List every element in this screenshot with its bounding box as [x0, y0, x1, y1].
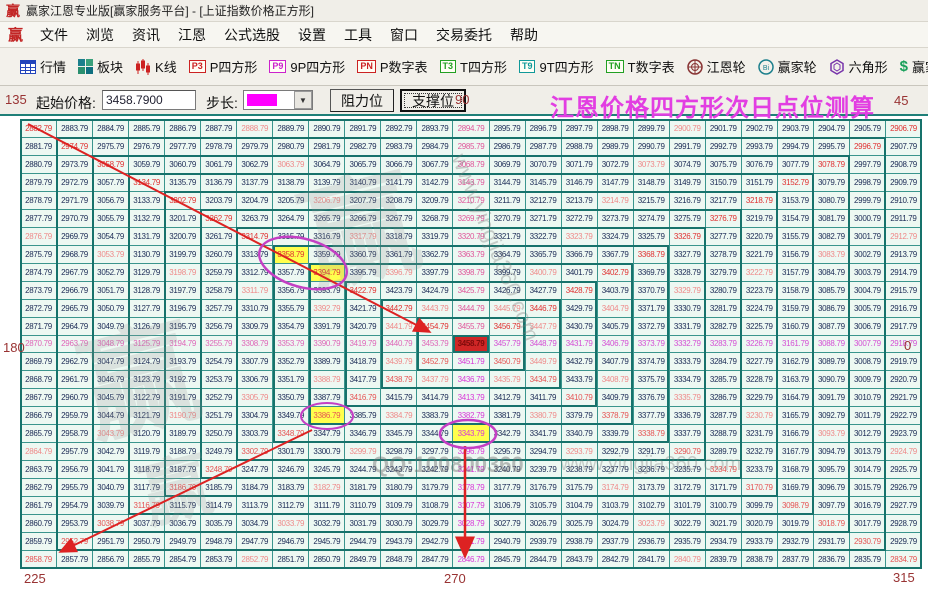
grid-cell: 2937.79	[598, 533, 634, 551]
grid-cell: 2879.79	[21, 174, 57, 192]
grid-cell: 3341.79	[526, 425, 562, 443]
grid-cell: 3067.79	[417, 156, 453, 174]
grid-cell: 2888.79	[237, 120, 273, 138]
grid-cell: 2940.79	[490, 533, 526, 551]
chip-p3-icon: P3	[189, 60, 206, 73]
toolbar-button-2[interactable]: 板块	[72, 54, 129, 79]
grid-cell: 3365.79	[526, 246, 562, 264]
toolbar-button-label: 赢家轮	[778, 57, 817, 76]
grid-cell: 3325.79	[634, 228, 670, 246]
grid-cell: 3340.79	[562, 425, 598, 443]
grid-cell: 3245.79	[309, 461, 345, 479]
grid-cell: 2993.79	[742, 138, 778, 156]
grid-cell: 3150.79	[706, 174, 742, 192]
grid-cell: 3048.79	[93, 336, 129, 354]
angle-label-90: 90	[455, 92, 469, 107]
grid-cell: 2977.79	[165, 138, 201, 156]
toolbar-button-8[interactable]: T99T四方形	[513, 54, 600, 79]
grid-cell: 3449.79	[526, 353, 562, 371]
grid-cell: 3143.79	[453, 174, 489, 192]
grid-cell: 2999.79	[850, 192, 886, 210]
grid-cell: 2975.79	[93, 138, 129, 156]
grid-cell: 3080.79	[814, 192, 850, 210]
grid-cell: 3301.79	[273, 443, 309, 461]
grid-cell: 3046.79	[93, 371, 129, 389]
grid-cell: 3326.79	[670, 228, 706, 246]
grid-cell: 3296.79	[453, 443, 489, 461]
menu-item-7[interactable]: 工具	[335, 23, 381, 47]
grid-cell: 2947.79	[237, 533, 273, 551]
grid-cell: 2852.79	[237, 551, 273, 569]
grid-cell: 3437.79	[417, 371, 453, 389]
grid-cell: 3357.79	[273, 264, 309, 282]
grid-cell: 2884.79	[93, 120, 129, 138]
grid-cell: 3324.79	[598, 228, 634, 246]
toolbar-button-label: 赢家服务	[912, 57, 928, 76]
grid-cell: 3010.79	[850, 389, 886, 407]
grid-cell: 3024.79	[598, 515, 634, 533]
grid-cell: 2873.79	[21, 282, 57, 300]
grid-cell: 3149.79	[670, 174, 706, 192]
grid-cell: 2857.79	[57, 551, 93, 569]
grid-cell: 3088.79	[814, 336, 850, 354]
grid-cell: 2843.79	[562, 551, 598, 569]
grid-cell: 2917.79	[886, 318, 922, 336]
grid-cell: 3438.79	[381, 371, 417, 389]
grid-cell: 2938.79	[562, 533, 598, 551]
step-color-swatch	[247, 94, 277, 106]
toolbar-button-3[interactable]: K线	[129, 54, 183, 79]
grid-cell: 3082.79	[814, 228, 850, 246]
grid-cell: 3293.79	[562, 443, 598, 461]
grid-cell: 3004.79	[850, 282, 886, 300]
grid-cell: 3418.79	[345, 353, 381, 371]
grid-cell: 3233.79	[742, 461, 778, 479]
grid-cell: 3290.79	[670, 443, 706, 461]
grid-cell: 3288.79	[706, 425, 742, 443]
grid-cell: 2851.79	[273, 551, 309, 569]
grid-cell: 2891.79	[345, 120, 381, 138]
grid-cell: 3382.79	[453, 407, 489, 425]
grid-cell: 3309.79	[237, 318, 273, 336]
grid-cell: 3023.79	[634, 515, 670, 533]
toolbar-button-label: T四方形	[460, 57, 507, 76]
grid-cell: 3447.79	[526, 318, 562, 336]
grid-cell: 2968.79	[57, 246, 93, 264]
grid-cell: 3239.79	[526, 461, 562, 479]
gann-grid: 2882.792883.792884.792885.792886.792887.…	[20, 119, 922, 569]
grid-cell: 3264.79	[273, 210, 309, 228]
grid-cell: 3012.79	[850, 425, 886, 443]
menu-item-9[interactable]: 交易委托	[427, 23, 501, 47]
grid-cell: 3328.79	[670, 264, 706, 282]
grid-cell: 3243.79	[381, 461, 417, 479]
grid-cell: 3066.79	[381, 156, 417, 174]
grid-cell: 3451.79	[453, 353, 489, 371]
grid-cell: 3037.79	[129, 515, 165, 533]
grid-cell: 3068.79	[453, 156, 489, 174]
grid-cell: 3279.79	[706, 264, 742, 282]
grid-cell: 3184.79	[237, 479, 273, 497]
grid-cell: 3026.79	[526, 515, 562, 533]
grid-cell: 3029.79	[417, 515, 453, 533]
grid-cell: 3145.79	[526, 174, 562, 192]
grid-cell: 2985.79	[453, 138, 489, 156]
grid-cell: 2927.79	[886, 497, 922, 515]
grid-cell: 3345.79	[381, 425, 417, 443]
grid-cell: 3140.79	[345, 174, 381, 192]
grid-cell: 3224.79	[742, 300, 778, 318]
grid-cell: 3285.79	[706, 371, 742, 389]
grid-cell: 3165.79	[778, 407, 814, 425]
grid-cell: 3249.79	[201, 443, 237, 461]
grid-cell: 3260.79	[201, 246, 237, 264]
grid-cell: 3265.79	[309, 210, 345, 228]
menu-item-6[interactable]: 设置	[289, 23, 335, 47]
menu-item-5[interactable]: 公式选股	[215, 23, 289, 47]
toolbar-button-13[interactable]: $赢家服务	[894, 54, 928, 79]
toolbar-button-9[interactable]: TNT数字表	[600, 54, 681, 79]
grid-cell: 2965.79	[57, 300, 93, 318]
grid-cell: 3361.79	[381, 246, 417, 264]
grid-cell: 3144.79	[490, 174, 526, 192]
grid-cell: 3094.79	[814, 443, 850, 461]
grid-cell: 3432.79	[562, 353, 598, 371]
grid-cell: 3164.79	[778, 389, 814, 407]
grid-cell: 2885.79	[129, 120, 165, 138]
grid-cell: 2835.79	[850, 551, 886, 569]
grid-cell: 3090.79	[814, 371, 850, 389]
grid-cell: 3268.79	[417, 210, 453, 228]
grid-cell: 3110.79	[345, 497, 381, 515]
grid-cell: 3129.79	[129, 264, 165, 282]
grid-cell: 2949.79	[165, 533, 201, 551]
grid-cell: 3422.79	[345, 282, 381, 300]
toolbar-button-12[interactable]: 六角形	[823, 54, 894, 79]
grid-cell: 3307.79	[237, 353, 273, 371]
grid-cell: 2901.79	[706, 120, 742, 138]
menu-item-10[interactable]: 帮助	[501, 23, 547, 47]
grid-cell: 3036.79	[165, 515, 201, 533]
grid-cell: 3128.79	[129, 282, 165, 300]
grid-cell: 2849.79	[345, 551, 381, 569]
grid-cell: 3273.79	[598, 210, 634, 228]
grid-cell: 3347.79	[309, 425, 345, 443]
grid-cell: 3122.79	[129, 389, 165, 407]
grid-cell: 3121.79	[129, 407, 165, 425]
grid-cell: 3410.79	[562, 389, 598, 407]
grid-cell: 3281.79	[706, 300, 742, 318]
grid-cell: 3041.79	[93, 461, 129, 479]
grid-cell: 2958.79	[57, 425, 93, 443]
grid-cell: 2946.79	[273, 533, 309, 551]
grid-cell: 3298.79	[381, 443, 417, 461]
grid-cell: 2945.79	[309, 533, 345, 551]
grid-cell: 3439.79	[381, 353, 417, 371]
grid-cell: 3175.79	[562, 479, 598, 497]
grid-cell: 3158.79	[778, 282, 814, 300]
grid-cell: 3354.79	[273, 318, 309, 336]
grid-cell: 3339.79	[598, 425, 634, 443]
grid-cell: 3202.79	[165, 192, 201, 210]
menu-item-8[interactable]: 窗口	[381, 23, 427, 47]
grid-cell: 3283.79	[706, 336, 742, 354]
grid-cell: 3274.79	[634, 210, 670, 228]
menu-item-4[interactable]: 江恩	[169, 23, 215, 47]
toolbar-button-5[interactable]: P99P四方形	[263, 54, 351, 79]
grid-cell: 3005.79	[850, 300, 886, 318]
grid-cell: 3002.79	[850, 246, 886, 264]
chip-p9-icon: P9	[269, 60, 286, 73]
grid-cell: 3400.79	[526, 264, 562, 282]
grid-cell: 3177.79	[490, 479, 526, 497]
grid-cell: 3198.79	[165, 264, 201, 282]
toolbar-button-11[interactable]: Bi赢家轮	[752, 54, 823, 79]
menu-item-3[interactable]: 资讯	[123, 23, 169, 47]
grid-cell: 2874.79	[21, 264, 57, 282]
grid-cell: 3220.79	[742, 228, 778, 246]
grid-cell: 2952.79	[57, 533, 93, 551]
grid-cell: 2989.79	[598, 138, 634, 156]
grid-cell: 3058.79	[93, 156, 129, 174]
grid-cell: 2895.79	[490, 120, 526, 138]
grid-cell: 3445.79	[490, 300, 526, 318]
grid-cell: 3266.79	[345, 210, 381, 228]
grid-cell: 3078.79	[814, 156, 850, 174]
grid-cell: 3322.79	[526, 228, 562, 246]
grid-cell: 2854.79	[165, 551, 201, 569]
grid-cell: 3040.79	[93, 479, 129, 497]
grid-cell: 3062.79	[237, 156, 273, 174]
grid-cell: 2996.79	[850, 138, 886, 156]
menu-bar: 赢 文件浏览资讯江恩公式选股设置工具窗口交易委托帮助	[0, 22, 928, 48]
grid-cell: 2988.79	[562, 138, 598, 156]
grid-cell: 3366.79	[562, 246, 598, 264]
grid-cell: 3017.79	[850, 515, 886, 533]
grid-cell: 3434.79	[526, 371, 562, 389]
angle-label-225: 225	[24, 571, 46, 586]
grid-cell: 3168.79	[778, 461, 814, 479]
grid-cell: 3387.79	[309, 389, 345, 407]
grid-cell: 3391.79	[309, 318, 345, 336]
start-price-input[interactable]	[102, 90, 196, 110]
grid-cell: 3097.79	[814, 497, 850, 515]
toolbar-button-label: 9T四方形	[539, 57, 593, 76]
grid-cell: 3441.79	[381, 318, 417, 336]
grid-cell: 3034.79	[237, 515, 273, 533]
grid-cell: 3009.79	[850, 371, 886, 389]
grid-cell: 2860.79	[21, 515, 57, 533]
grid-cell: 3414.79	[417, 389, 453, 407]
grid-cell: 3208.79	[381, 192, 417, 210]
grid-cell: 3450.79	[490, 353, 526, 371]
grid-cell: 3181.79	[345, 479, 381, 497]
grid-cell: 3119.79	[129, 443, 165, 461]
grid-cell: 3072.79	[598, 156, 634, 174]
grid-cell: 3221.79	[742, 246, 778, 264]
grid-cell: 3085.79	[814, 282, 850, 300]
grid-cell: 3406.79	[598, 336, 634, 354]
grid-cell: 3038.79	[93, 515, 129, 533]
grid-cell: 3424.79	[417, 282, 453, 300]
grid-cell: 3003.79	[850, 264, 886, 282]
grid-cell: 3081.79	[814, 210, 850, 228]
toolbar-button-1[interactable]: 行情	[14, 54, 72, 79]
grid-cell: 2846.79	[453, 551, 489, 569]
grid-cell: 3156.79	[778, 246, 814, 264]
grid-cell: 3047.79	[93, 353, 129, 371]
grid-cell: 3417.79	[345, 371, 381, 389]
grid-cell: 3192.79	[165, 371, 201, 389]
grid-cell: 2974.79	[57, 138, 93, 156]
grid-cell: 3329.79	[670, 282, 706, 300]
grid-cell: 2872.79	[21, 300, 57, 318]
grid-cell: 3210.79	[453, 192, 489, 210]
grid-cell: 2980.79	[273, 138, 309, 156]
svg-text:Bi: Bi	[763, 65, 770, 72]
grid-cell: 2920.79	[886, 371, 922, 389]
grid-cell: 3079.79	[814, 174, 850, 192]
grid-cell: 3212.79	[526, 192, 562, 210]
grid-cell: 2850.79	[309, 551, 345, 569]
grid-cell: 3100.79	[706, 497, 742, 515]
grid-cell: 3335.79	[670, 389, 706, 407]
grid-cell: 2929.79	[886, 533, 922, 551]
grid-cell: 3375.79	[634, 371, 670, 389]
grid-cell: 3073.79	[634, 156, 670, 174]
grid-cell: 3032.79	[309, 515, 345, 533]
grid-cell: 3454.79	[417, 318, 453, 336]
grid-cell: 3039.79	[93, 497, 129, 515]
grid-cell: 3247.79	[237, 461, 273, 479]
grid-cell: 3001.79	[850, 228, 886, 246]
grid-cell: 2906.79	[886, 120, 922, 138]
grid-cell: 3152.79	[778, 174, 814, 192]
grid-cell: 2960.79	[57, 389, 93, 407]
grid-cell: 2969.79	[57, 228, 93, 246]
step-dropdown[interactable]: ▼	[243, 90, 313, 110]
grid-cell: 2978.79	[201, 138, 237, 156]
grid-cell: 3167.79	[778, 443, 814, 461]
grid-cell: 3000.79	[850, 210, 886, 228]
dollar-icon: $	[900, 58, 908, 75]
grid-cell: 3248.79	[201, 461, 237, 479]
grid-cell: 2875.79	[21, 246, 57, 264]
grid-cell: 3242.79	[417, 461, 453, 479]
toolbar-button-4[interactable]: P3P四方形	[183, 54, 264, 79]
grid-cell: 3270.79	[490, 210, 526, 228]
grid-cell: 2957.79	[57, 443, 93, 461]
toolbar-button-6[interactable]: PNP数字表	[351, 54, 433, 79]
grid-cell: 3185.79	[201, 479, 237, 497]
grid-cell: 3251.79	[201, 407, 237, 425]
grid-cell: 2971.79	[57, 192, 93, 210]
menu-item-1[interactable]: 文件	[31, 23, 77, 47]
grid-cell: 3045.79	[93, 389, 129, 407]
grid-cell: 3086.79	[814, 300, 850, 318]
grid-cell: 2840.79	[670, 551, 706, 569]
grid-cell: 3393.79	[309, 282, 345, 300]
grid-cell: 3411.79	[526, 389, 562, 407]
grid-cell: 3416.79	[345, 389, 381, 407]
grid-cell: 3397.79	[417, 264, 453, 282]
grid-cell: 2961.79	[57, 371, 93, 389]
grid-cell: 3427.79	[526, 282, 562, 300]
grid-cell: 3201.79	[165, 210, 201, 228]
menu-item-2[interactable]: 浏览	[77, 23, 123, 47]
grid-cell: 3377.79	[634, 407, 670, 425]
grid-cell: 2954.79	[57, 497, 93, 515]
grid-cell: 3368.79	[634, 246, 670, 264]
grid-cell: 3399.79	[490, 264, 526, 282]
chevron-down-icon[interactable]: ▼	[294, 91, 312, 109]
grid-cell: 3320.79	[453, 228, 489, 246]
grid-cell: 3358.79	[273, 246, 309, 264]
grid-cell: 3099.79	[742, 497, 778, 515]
grid-cell: 3373.79	[634, 336, 670, 354]
grid-cell: 3060.79	[165, 156, 201, 174]
grid-cell: 3056.79	[93, 192, 129, 210]
toolbar-button-10[interactable]: 江恩轮	[681, 54, 752, 79]
grid-cell: 2896.79	[526, 120, 562, 138]
grid-cell: 3027.79	[490, 515, 526, 533]
grid-cell: 2943.79	[381, 533, 417, 551]
grid-cell: 3107.79	[453, 497, 489, 515]
grid-cell: 3059.79	[129, 156, 165, 174]
grid-cell: 2950.79	[129, 533, 165, 551]
grid-cell: 3112.79	[273, 497, 309, 515]
grid-cell: 3318.79	[381, 228, 417, 246]
grid-cell: 3455.79	[453, 318, 489, 336]
grid-cell: 3206.79	[309, 192, 345, 210]
grid-cell: 3372.79	[634, 318, 670, 336]
chip-pn-icon: PN	[357, 60, 376, 73]
grid-cell: 2881.79	[21, 138, 57, 156]
grid-cell: 3415.79	[381, 389, 417, 407]
menu-items: 文件浏览资讯江恩公式选股设置工具窗口交易委托帮助	[31, 23, 547, 47]
grid-cell: 3108.79	[417, 497, 453, 515]
gann-wheel-icon	[687, 59, 703, 75]
grid-cell: 3308.79	[237, 336, 273, 354]
grid-cell: 2880.79	[21, 156, 57, 174]
quotes-table-icon	[20, 60, 36, 74]
grid-cell: 2935.79	[670, 533, 706, 551]
grid-cell: 3383.79	[417, 407, 453, 425]
grid-cell: 2848.79	[381, 551, 417, 569]
grid-cell: 2942.79	[417, 533, 453, 551]
grid-cell: 3394.79	[309, 264, 345, 282]
angle-label-45: 45	[894, 93, 908, 108]
grid-cell-selected: 3458.79	[453, 336, 489, 354]
resistance-button[interactable]: 阻力位	[330, 89, 394, 112]
grid-cell: 2915.79	[886, 282, 922, 300]
grid-cell: 3297.79	[417, 443, 453, 461]
hexagon-icon	[829, 59, 845, 75]
grid-cell: 3336.79	[670, 407, 706, 425]
grid-cell: 3136.79	[201, 174, 237, 192]
winner-wheel-icon: Bi	[758, 59, 774, 75]
grid-cell: 3303.79	[237, 425, 273, 443]
grid-cell: 3280.79	[706, 282, 742, 300]
toolbar-button-7[interactable]: T3T四方形	[434, 54, 513, 79]
grid-cell: 3007.79	[850, 336, 886, 354]
grid-cell: 3401.79	[562, 264, 598, 282]
grid-cell: 2916.79	[886, 300, 922, 318]
grid-cell: 2877.79	[21, 210, 57, 228]
grid-cell: 2870.79	[21, 336, 57, 354]
grid-cell: 3049.79	[93, 318, 129, 336]
grid-cell: 2894.79	[453, 120, 489, 138]
